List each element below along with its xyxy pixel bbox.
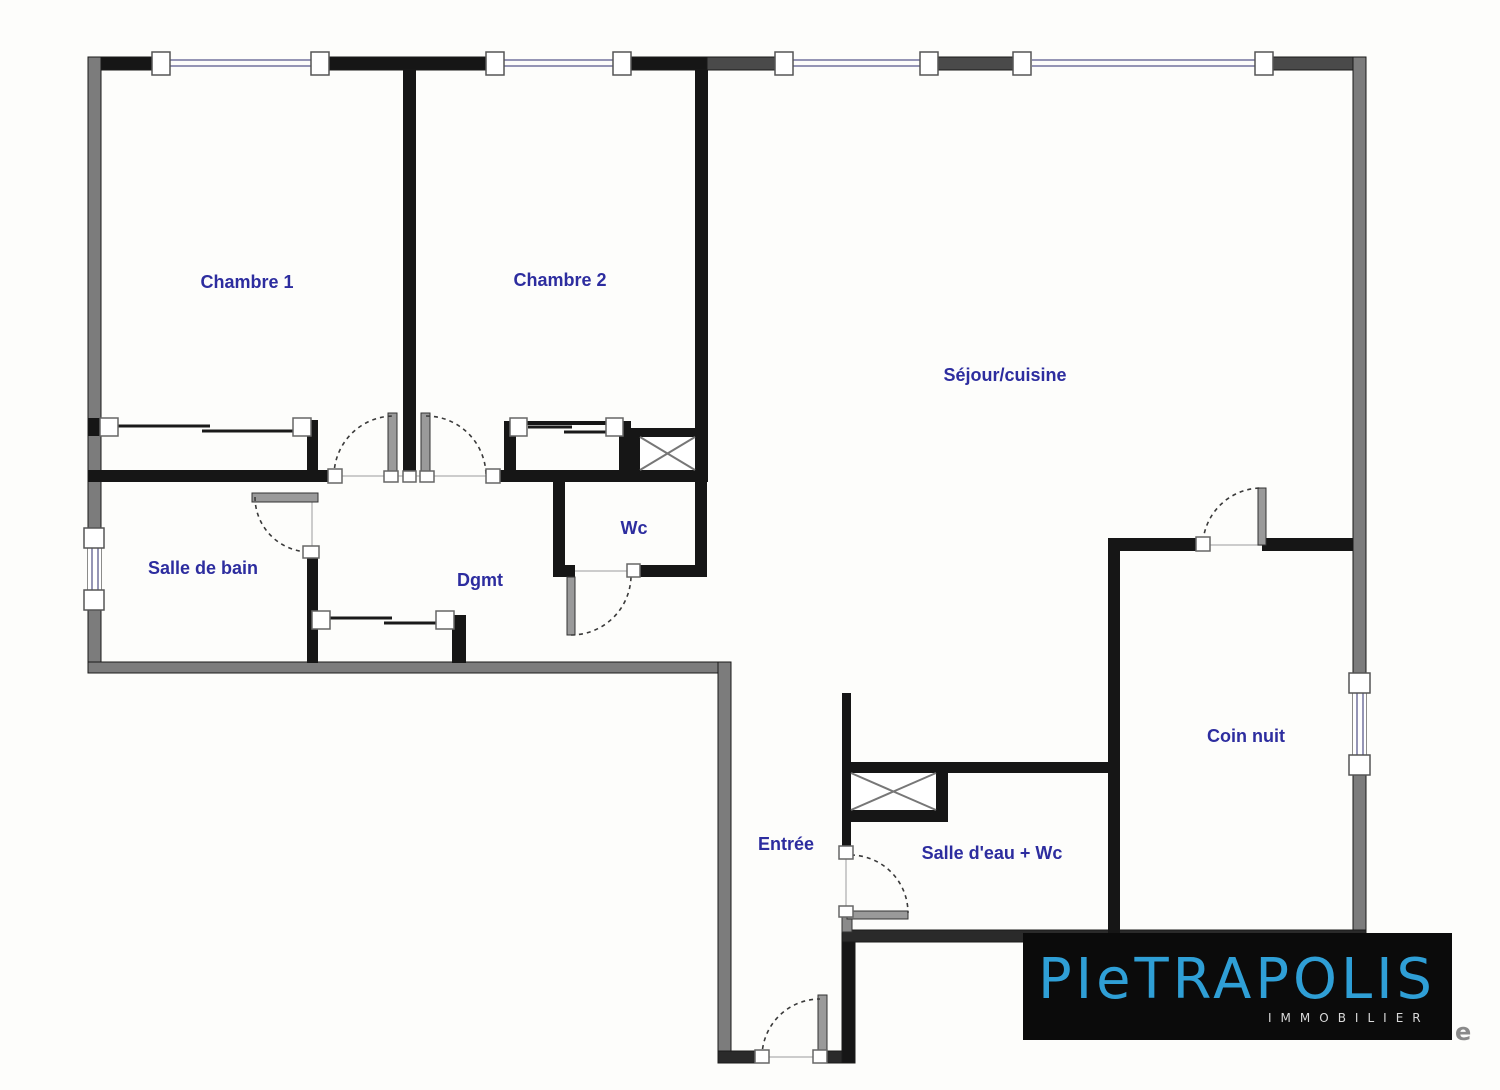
closet-chambre2	[504, 418, 631, 475]
agency-logo: PIeTRAPOLIS IMMOBILIER	[1023, 933, 1452, 1040]
wall-corridor-right	[842, 932, 855, 1063]
wall-wc-west	[553, 480, 565, 577]
door-entree	[762, 995, 827, 1057]
floorplan-drawing: Chambre 1 Chambre 2 Séjour/cuisine Salle…	[0, 0, 1500, 1090]
outer-walls	[88, 57, 1366, 1063]
closet-dgmt	[312, 611, 466, 663]
room-label-sejour: Séjour/cuisine	[943, 365, 1066, 385]
wall-right-outer	[1353, 57, 1366, 942]
wall-corridor-left	[718, 662, 731, 1063]
room-label-entree: Entrée	[758, 834, 814, 854]
room-label-coinnuit: Coin nuit	[1207, 726, 1285, 746]
wall-chambres-bottom-west	[88, 470, 333, 482]
wall-top-seg	[630, 57, 707, 70]
wall-coinnuit-west	[1108, 538, 1120, 942]
wall-top-seg	[937, 57, 1015, 70]
wall-top-seg	[1272, 57, 1366, 70]
logo-brand-text: PIeTRAPOLIS	[1038, 947, 1436, 1012]
wall-coinnuit-top-left	[1108, 538, 1203, 551]
logo-subtitle-text: IMMOBILIER	[1268, 1011, 1430, 1025]
wall-chambre2-east	[695, 70, 708, 482]
room-label-salledeau: Salle d'eau + Wc	[922, 843, 1063, 863]
wall-top-seg	[328, 57, 488, 70]
door-chambre2	[421, 413, 486, 476]
wall-bathroom-east	[307, 552, 318, 663]
window-right-wall	[1349, 673, 1370, 775]
room-label-wc: Wc	[621, 518, 648, 538]
wall-wc-east	[695, 470, 707, 577]
wall-top-seg	[707, 57, 777, 70]
room-label-chambre2: Chambre 2	[513, 270, 606, 290]
door-wc	[567, 577, 631, 635]
floorplan-page: Chambre 1 Chambre 2 Séjour/cuisine Salle…	[0, 0, 1500, 1090]
room-label-salledebain: Salle de bain	[148, 558, 258, 578]
wall-bottom-left-section	[88, 662, 731, 673]
wall-coinnuit-top-right	[1262, 538, 1353, 551]
stray-letter-fragment: e	[1455, 1018, 1471, 1046]
wall-wc-bottom-right	[633, 565, 707, 577]
wall-chambres-bottom-east	[498, 470, 708, 482]
window-left-wall	[84, 528, 104, 610]
closet-chambre1	[88, 418, 318, 470]
door-salledeau	[847, 855, 908, 919]
room-label-dgmt: Dgmt	[457, 570, 503, 590]
wall-salledeau-top	[842, 762, 1118, 773]
door-coinnuit	[1203, 488, 1266, 545]
room-label-chambre1: Chambre 1	[200, 272, 293, 292]
wall-chambre-divider	[403, 70, 416, 482]
door-bathroom	[252, 493, 318, 552]
door-chambre1	[334, 413, 397, 476]
wall-wc-bottom-left	[553, 565, 575, 577]
shaft-chambre2	[630, 428, 700, 475]
